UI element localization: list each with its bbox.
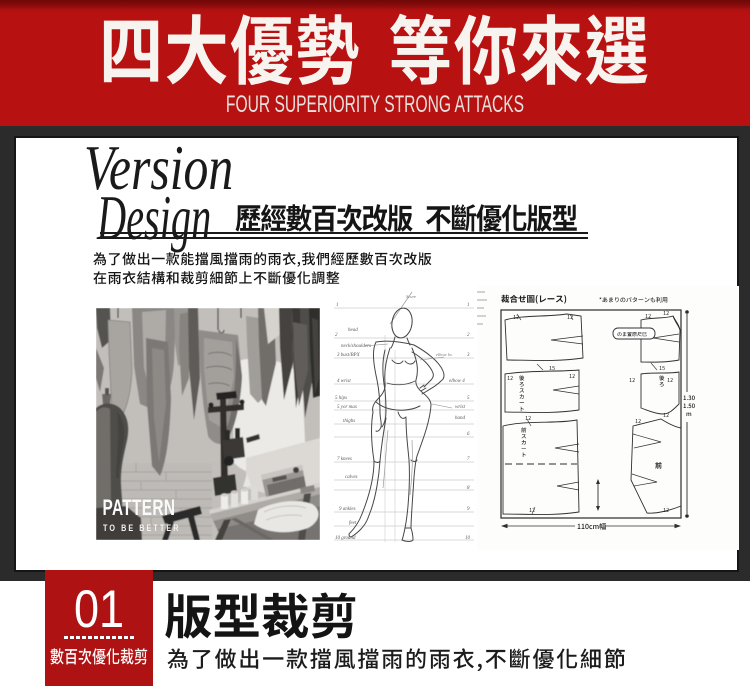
svg-text:5: 5: [467, 396, 470, 401]
svg-text:9 ankles: 9 ankles: [339, 507, 356, 512]
svg-text:neck/shoulders: neck/shoulders: [341, 344, 371, 349]
svg-text:6: 6: [467, 432, 470, 437]
svg-text:wrist: wrist: [455, 405, 466, 410]
svg-text:4 wrist: 4 wrist: [337, 379, 351, 384]
svg-text:9: 9: [467, 507, 470, 512]
svg-text:elbow lw: elbow lw: [436, 352, 452, 357]
svg-text:calves: calves: [345, 475, 358, 480]
svg-text:hand: hand: [455, 416, 466, 421]
svg-text:3 bust/BPX: 3 bust/BPX: [337, 353, 361, 358]
svg-text:10: 10: [465, 536, 471, 541]
svg-text:5 yor max: 5 yor max: [337, 405, 358, 410]
svg-text:2: 2: [467, 333, 470, 338]
svg-text:Scure: Scure: [406, 294, 416, 299]
svg-text:TO BE BETTER: TO BE BETTER: [103, 523, 180, 533]
svg-text:elbow 4: elbow 4: [449, 379, 465, 384]
svg-text:7: 7: [467, 457, 470, 462]
svg-text:head: head: [348, 328, 358, 333]
svg-text:10 ground: 10 ground: [335, 536, 356, 541]
svg-text:PATTERN: PATTERN: [103, 496, 176, 520]
svg-text:5 hips: 5 hips: [335, 396, 347, 401]
svg-text:1: 1: [467, 303, 470, 308]
svg-text:7 knees: 7 knees: [337, 457, 352, 462]
svg-text:3: 3: [467, 353, 470, 358]
svg-text:1: 1: [336, 303, 339, 308]
svg-text:2: 2: [335, 333, 338, 338]
svg-text:thighs: thighs: [343, 419, 355, 424]
